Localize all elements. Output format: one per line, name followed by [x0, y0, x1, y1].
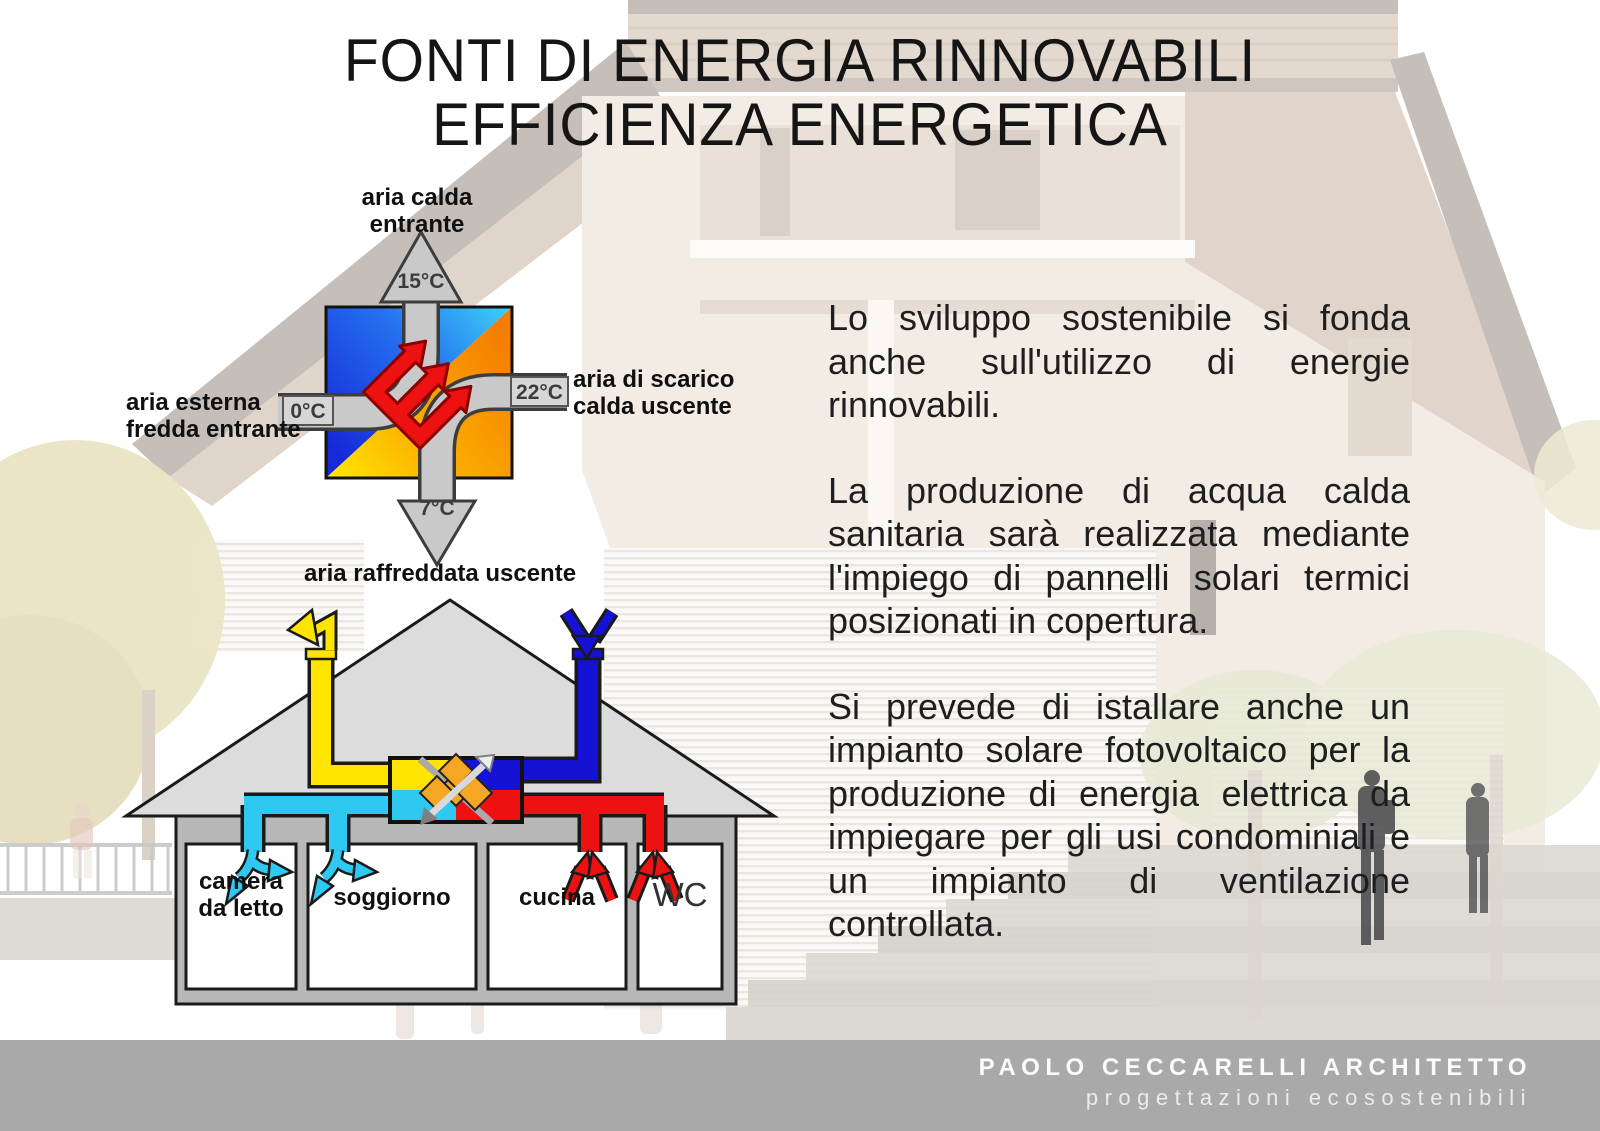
- slide-title-line1: FONTI DI ENERGIA RINNOVABILI: [40, 30, 1560, 92]
- footer-text: PAOLO CECCARELLI ARCHITETTO progettazion…: [979, 1054, 1532, 1111]
- room-label-cucina: cucina: [488, 884, 626, 911]
- temp-left: 0°C: [283, 400, 333, 424]
- room-label-wc: WC: [638, 876, 722, 914]
- label-exhaust-out: aria di scarico calda uscente: [573, 366, 748, 420]
- slide: FONTI DI ENERGIA RINNOVABILI EFFICIENZA …: [0, 0, 1600, 1131]
- temp-bottom: 7°C: [407, 497, 467, 521]
- paragraph-1: Lo sviluppo sostenibile si fonda anche s…: [828, 296, 1410, 427]
- footer-tagline: progettazioni ecosostenibili: [979, 1085, 1532, 1111]
- label-cooled-air-out: aria raffreddata uscente: [290, 560, 590, 587]
- footer-architect-name: PAOLO CECCARELLI ARCHITETTO: [979, 1054, 1532, 1082]
- paragraph-3: Si prevede di istallare anche un impiant…: [828, 685, 1410, 946]
- temp-right: 22°C: [511, 381, 568, 405]
- temp-top: 15°C: [391, 270, 451, 294]
- room-label-soggiorno: soggiorno: [308, 884, 476, 911]
- body-text: Lo sviluppo sostenibile si fonda anche s…: [828, 296, 1410, 988]
- paragraph-2: La produzione di acqua calda sanitaria s…: [828, 469, 1410, 643]
- heat-recovery-unit: [390, 754, 522, 825]
- label-warm-air-in: aria calda entrante: [337, 184, 497, 238]
- slide-title-line2: EFFICIENZA ENERGETICA: [40, 94, 1560, 156]
- room-label-camera: camera da letto: [190, 868, 292, 922]
- footer-bar: PAOLO CECCARELLI ARCHITETTO progettazion…: [0, 1040, 1600, 1131]
